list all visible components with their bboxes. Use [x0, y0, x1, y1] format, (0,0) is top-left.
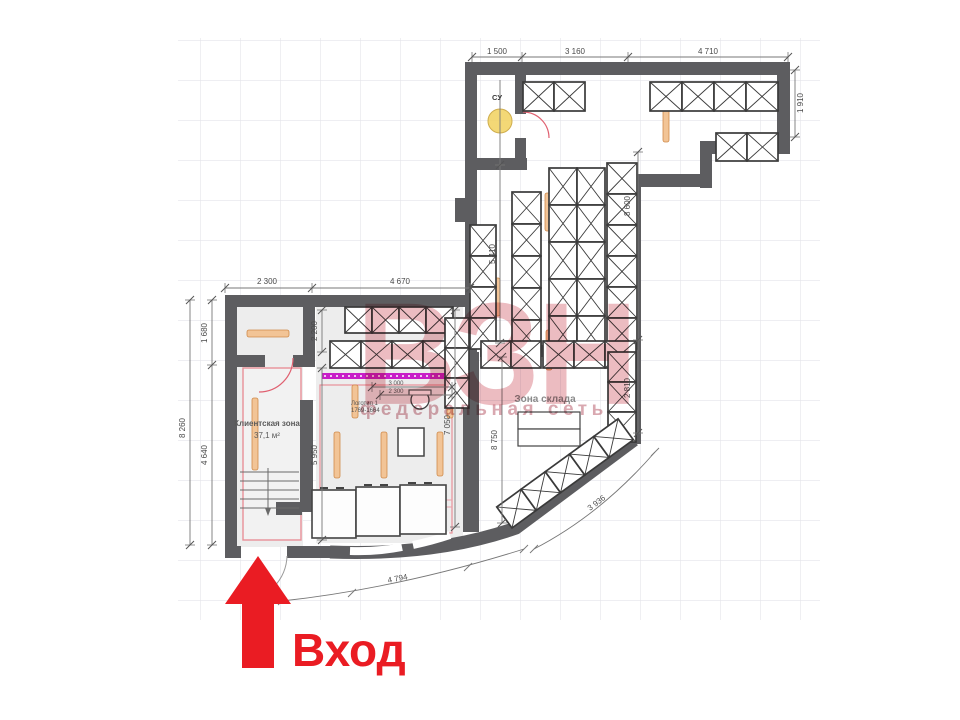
counter — [312, 490, 356, 538]
shelf-unit — [716, 133, 778, 161]
dim-left-room: 2 200 — [310, 320, 319, 341]
dim-storage-left: 5 410 — [488, 243, 497, 264]
shelf-unit — [650, 82, 778, 111]
light-strip — [381, 432, 387, 478]
dim-lower-top-1: 2 300 — [257, 277, 278, 286]
floor-plan-page: 1 500 3 160 4 710 1 910 8 600 2 810 5 41… — [0, 0, 960, 720]
client-zone-area: 37,1 м² — [254, 431, 280, 440]
counters — [312, 483, 446, 538]
dim-right-upper: 8 600 — [623, 195, 632, 216]
dim-left-seg-top: 1 680 — [200, 322, 209, 343]
client-zone-label: Клиентская зона — [234, 419, 300, 428]
dim-right-top: 1 910 — [796, 92, 805, 113]
entrance-label: Вход — [292, 624, 406, 676]
su-room-label: СУ — [492, 93, 502, 102]
dim-left-outer: 8 260 — [178, 417, 187, 438]
dim-left-seg-bottom: 4 640 — [200, 444, 209, 465]
shelf-unit — [523, 82, 585, 111]
dim-sales-left: 5 950 — [310, 444, 319, 465]
light-strip — [247, 330, 289, 337]
dim-top-3: 4 710 — [698, 47, 719, 56]
dim-top-1: 1 500 — [487, 47, 508, 56]
light-strip — [437, 432, 443, 476]
counter — [356, 487, 400, 536]
dim-top-2: 3 160 — [565, 47, 586, 56]
light-strip — [334, 432, 340, 478]
watermark-subtitle: федеральная сеть — [360, 399, 608, 421]
counter — [400, 485, 446, 534]
